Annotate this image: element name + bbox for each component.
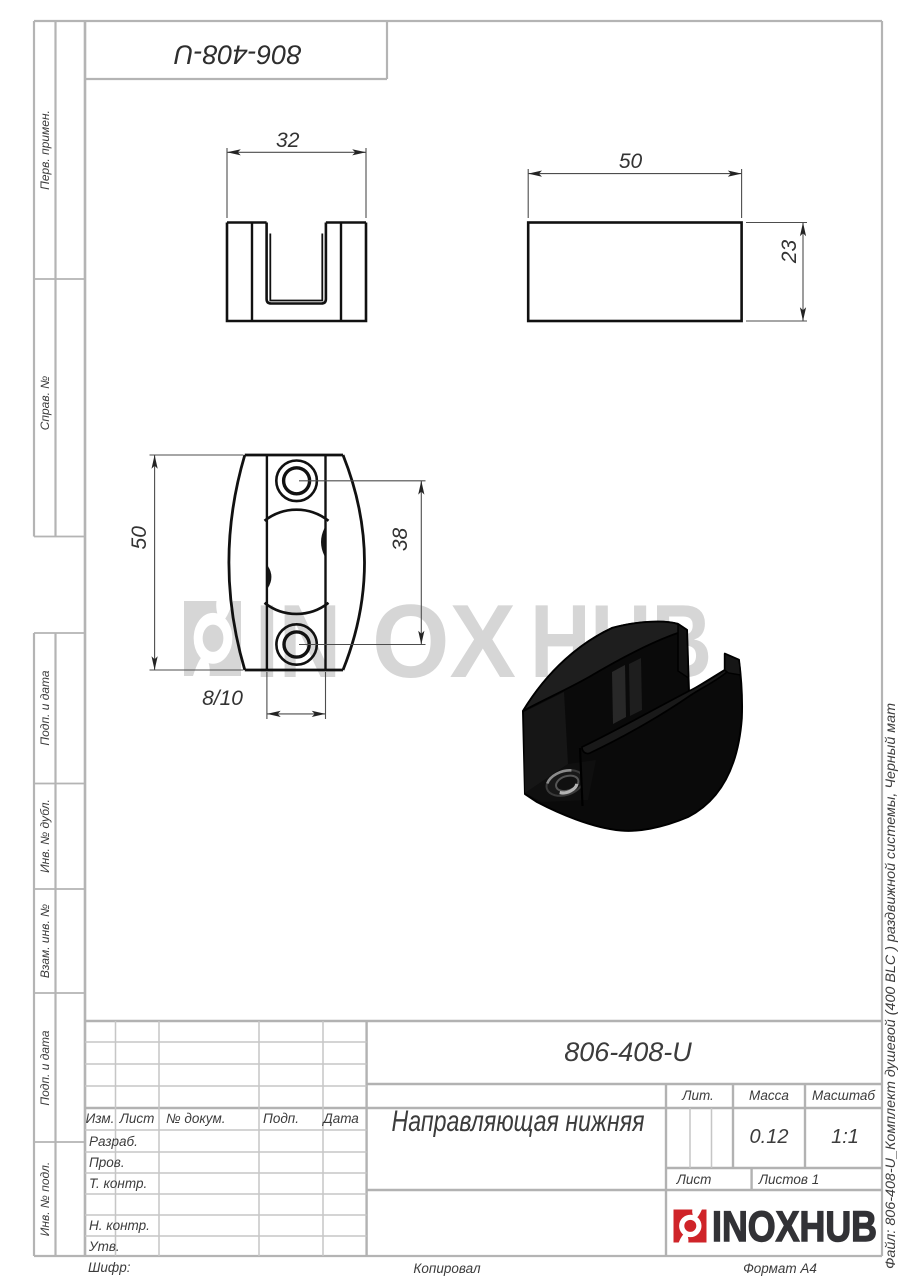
svg-text:Формат А4: Формат А4 (743, 1261, 817, 1276)
svg-text:50: 50 (619, 150, 643, 173)
svg-text:Файл: 806-408-U_Комплект душев: Файл: 806-408-U_Комплект душевой (400 BL… (883, 703, 898, 1269)
svg-text:Изм.: Изм. (86, 1111, 115, 1126)
svg-text:Инв. № дубл.: Инв. № дубл. (38, 799, 52, 873)
svg-text:Н. контр.: Н. контр. (89, 1218, 150, 1233)
svg-text:Направляющая нижняя: Направляющая нижняя (392, 1105, 645, 1138)
svg-text:Перв. примен.: Перв. примен. (38, 110, 52, 190)
svg-text:Масштаб: Масштаб (812, 1088, 875, 1103)
svg-text:Лит.: Лит. (681, 1088, 714, 1103)
svg-text:Масса: Масса (749, 1088, 789, 1103)
svg-text:Пров.: Пров. (89, 1155, 125, 1170)
svg-text:806-408-U: 806-408-U (174, 40, 302, 70)
svg-text:Инв. № подл.: Инв. № подл. (38, 1162, 52, 1236)
svg-text:50: 50 (128, 526, 151, 550)
svg-text:Подп. и дата: Подп. и дата (38, 670, 52, 745)
svg-text:23: 23 (778, 240, 801, 265)
svg-text:Подп.: Подп. (263, 1111, 299, 1126)
svg-text:1:1: 1:1 (831, 1126, 859, 1148)
svg-text:Т. контр.: Т. контр. (89, 1176, 147, 1191)
svg-text:INOXHUB: INOXHUB (712, 1203, 877, 1251)
svg-text:Копировал: Копировал (413, 1261, 481, 1276)
svg-text:Дата: Дата (321, 1111, 359, 1126)
svg-text:Листов 1: Листов 1 (758, 1172, 819, 1187)
svg-text:8/10: 8/10 (202, 687, 243, 710)
svg-text:Взам. инв. №: Взам. инв. № (38, 904, 52, 978)
svg-text:32: 32 (276, 129, 300, 152)
svg-text:№ докум.: № докум. (166, 1111, 225, 1126)
svg-text:Утв.: Утв. (88, 1239, 120, 1254)
svg-text:Лист: Лист (676, 1172, 712, 1187)
svg-text:Разраб.: Разраб. (89, 1134, 138, 1149)
svg-text:Подп. и дата: Подп. и дата (38, 1030, 52, 1105)
svg-text:Лист: Лист (119, 1111, 155, 1126)
svg-text:38: 38 (389, 528, 412, 552)
svg-text:0.12: 0.12 (750, 1126, 789, 1148)
svg-text:Шифр:: Шифр: (88, 1260, 131, 1275)
svg-text:806-408-U: 806-408-U (564, 1037, 692, 1067)
svg-text:OX: OX (372, 584, 516, 700)
svg-text:Справ. №: Справ. № (38, 376, 52, 431)
